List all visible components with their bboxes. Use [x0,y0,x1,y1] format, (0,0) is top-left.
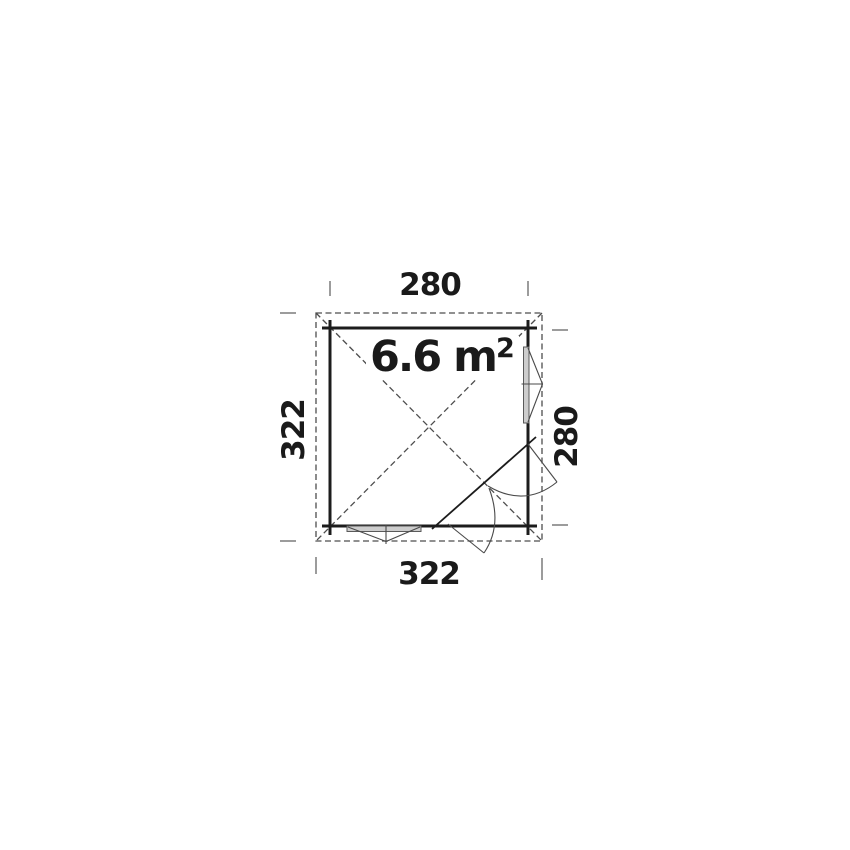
dimension-label-right: 280 [549,387,585,487]
window-right-sash [524,347,530,423]
corner-door-swing-bottom [484,488,495,553]
dimension-label-top: 280 [380,267,480,303]
area-label: 6.6 m2 [366,336,519,379]
area-superscript: 2 [496,335,515,362]
area-value: 6.6 m [370,336,496,379]
dimension-label-bottom: 322 [379,556,479,592]
window-right [522,347,543,423]
floor-plan: 280 322 280 322 6.6 m2 [0,0,850,850]
floor-plan-linework [0,0,850,850]
corner-door [432,437,557,553]
dimension-label-left: 322 [276,380,312,480]
corner-door-threshold [432,437,536,529]
corner-door-leaf-bottom [448,524,484,553]
corner-door-swing-right [488,482,557,496]
window-right-opening-triangle [528,348,543,422]
